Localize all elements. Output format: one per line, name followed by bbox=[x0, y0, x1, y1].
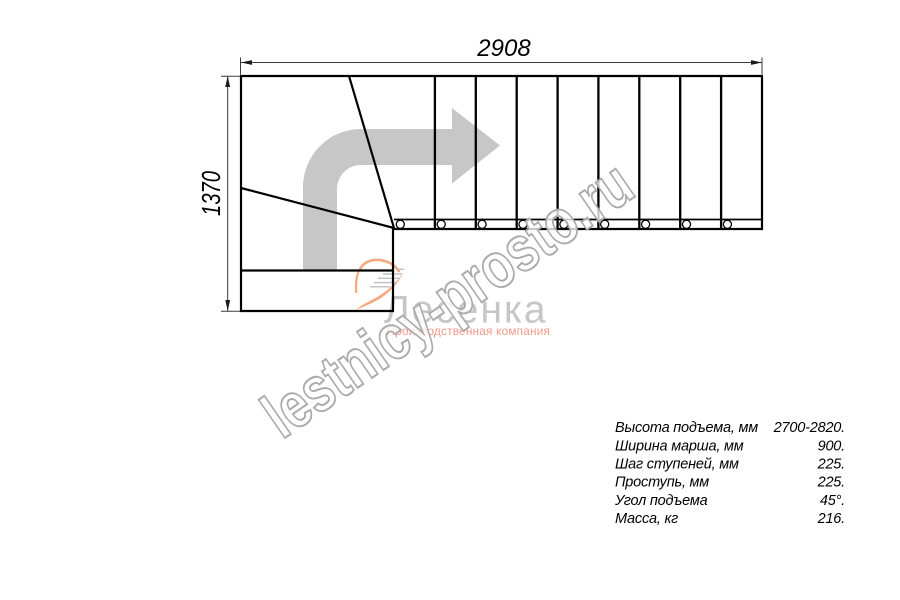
svg-text:225.: 225. bbox=[817, 456, 845, 472]
svg-text:1370: 1370 bbox=[197, 171, 226, 216]
svg-text:2908: 2908 bbox=[476, 35, 531, 62]
svg-text:216.: 216. bbox=[817, 511, 845, 527]
svg-text:Ширина марша, мм: Ширина марша, мм bbox=[615, 438, 744, 454]
svg-text:Угол подъема: Угол подъема bbox=[614, 493, 708, 509]
svg-text:225.: 225. bbox=[817, 474, 845, 490]
svg-text:900.: 900. bbox=[818, 438, 845, 454]
svg-text:Высота подъема, мм: Высота подъема, мм bbox=[615, 420, 758, 436]
svg-text:45°.: 45°. bbox=[820, 493, 845, 509]
svg-text:Масса, кг: Масса, кг bbox=[615, 511, 678, 527]
svg-text:2700-2820.: 2700-2820. bbox=[773, 420, 845, 436]
svg-text:Шаг ступеней, мм: Шаг ступеней, мм bbox=[615, 456, 739, 472]
svg-text:Проступь, мм: Проступь, мм bbox=[615, 474, 709, 490]
